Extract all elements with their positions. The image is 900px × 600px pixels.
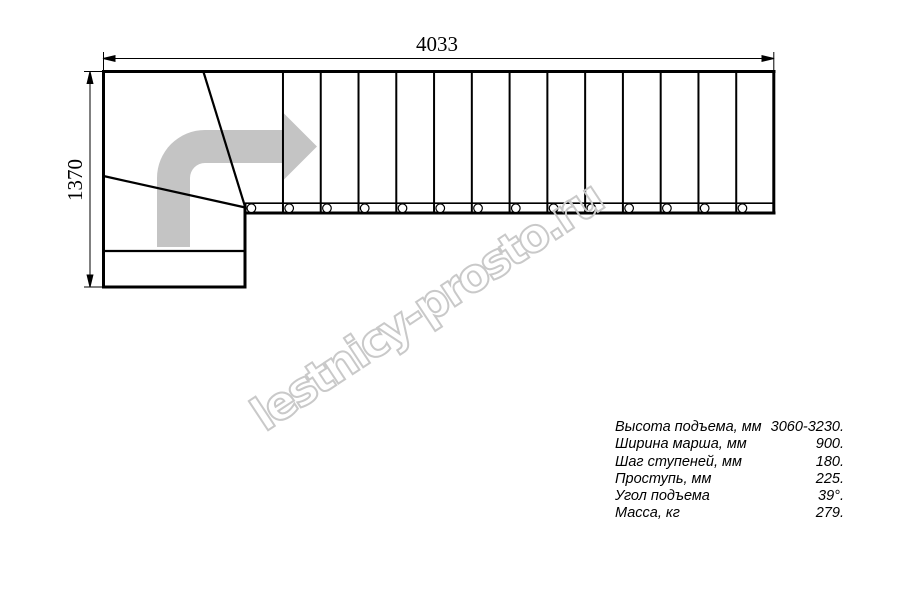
- step-marker-circle: [700, 204, 709, 213]
- stair-outline: [102, 70, 776, 289]
- step-marker-circle: [549, 204, 558, 213]
- spec-value: 3060-3230.: [771, 419, 844, 436]
- straight-flight-steps: [283, 72, 736, 213]
- spec-label: Высота подъема, мм: [615, 419, 762, 436]
- step-marker-circle: [512, 204, 521, 213]
- spec-row-tread-depth: Проступь, мм 225.: [615, 471, 844, 488]
- step-marker-circle: [436, 204, 445, 213]
- dim-arrow-right-icon: [762, 56, 774, 62]
- step-marker-circle: [285, 204, 294, 213]
- step-markers: [247, 204, 747, 213]
- step-marker-circle: [398, 204, 407, 213]
- step-marker-circle: [625, 204, 634, 213]
- step-marker-circle: [474, 204, 483, 213]
- dim-arrow-left-icon: [103, 56, 115, 62]
- spec-value: 180.: [816, 454, 844, 471]
- dim-arrow-up-icon: [87, 72, 93, 84]
- spec-value: 225.: [816, 471, 844, 488]
- spec-value: 39°.: [818, 488, 844, 505]
- stair-plan-page: 4033 1370 lestnicy-prosto.ru Высота подъ…: [0, 0, 900, 600]
- spec-value: 279.: [816, 505, 844, 522]
- dimension-width-label: 4033: [407, 32, 467, 57]
- spec-label: Ширина марша, мм: [615, 436, 747, 453]
- spec-row-mass: Масса, кг 279.: [615, 505, 844, 522]
- spec-row-flight-width: Ширина марша, мм 900.: [615, 436, 844, 453]
- step-marker-circle: [587, 204, 596, 213]
- spec-label: Шаг ступеней, мм: [615, 454, 742, 471]
- spec-label: Проступь, мм: [615, 471, 711, 488]
- spec-value: 900.: [816, 436, 844, 453]
- dim-arrow-down-icon: [87, 275, 93, 287]
- spec-label: Масса, кг: [615, 505, 680, 522]
- spec-row-climb-angle: Угол подъема 39°.: [615, 488, 844, 505]
- step-marker-circle: [360, 204, 369, 213]
- spec-row-rise-height: Высота подъема, мм 3060-3230.: [615, 419, 844, 436]
- spec-label: Угол подъема: [615, 488, 710, 505]
- spec-row-step-rise: Шаг ступеней, мм 180.: [615, 454, 844, 471]
- specifications-table: Высота подъема, мм 3060-3230. Ширина мар…: [615, 419, 844, 523]
- step-marker-circle: [247, 204, 256, 213]
- step-marker-circle: [323, 204, 332, 213]
- step-marker-circle: [663, 204, 672, 213]
- step-marker-circle: [738, 204, 747, 213]
- dimension-height-label: 1370: [63, 150, 85, 210]
